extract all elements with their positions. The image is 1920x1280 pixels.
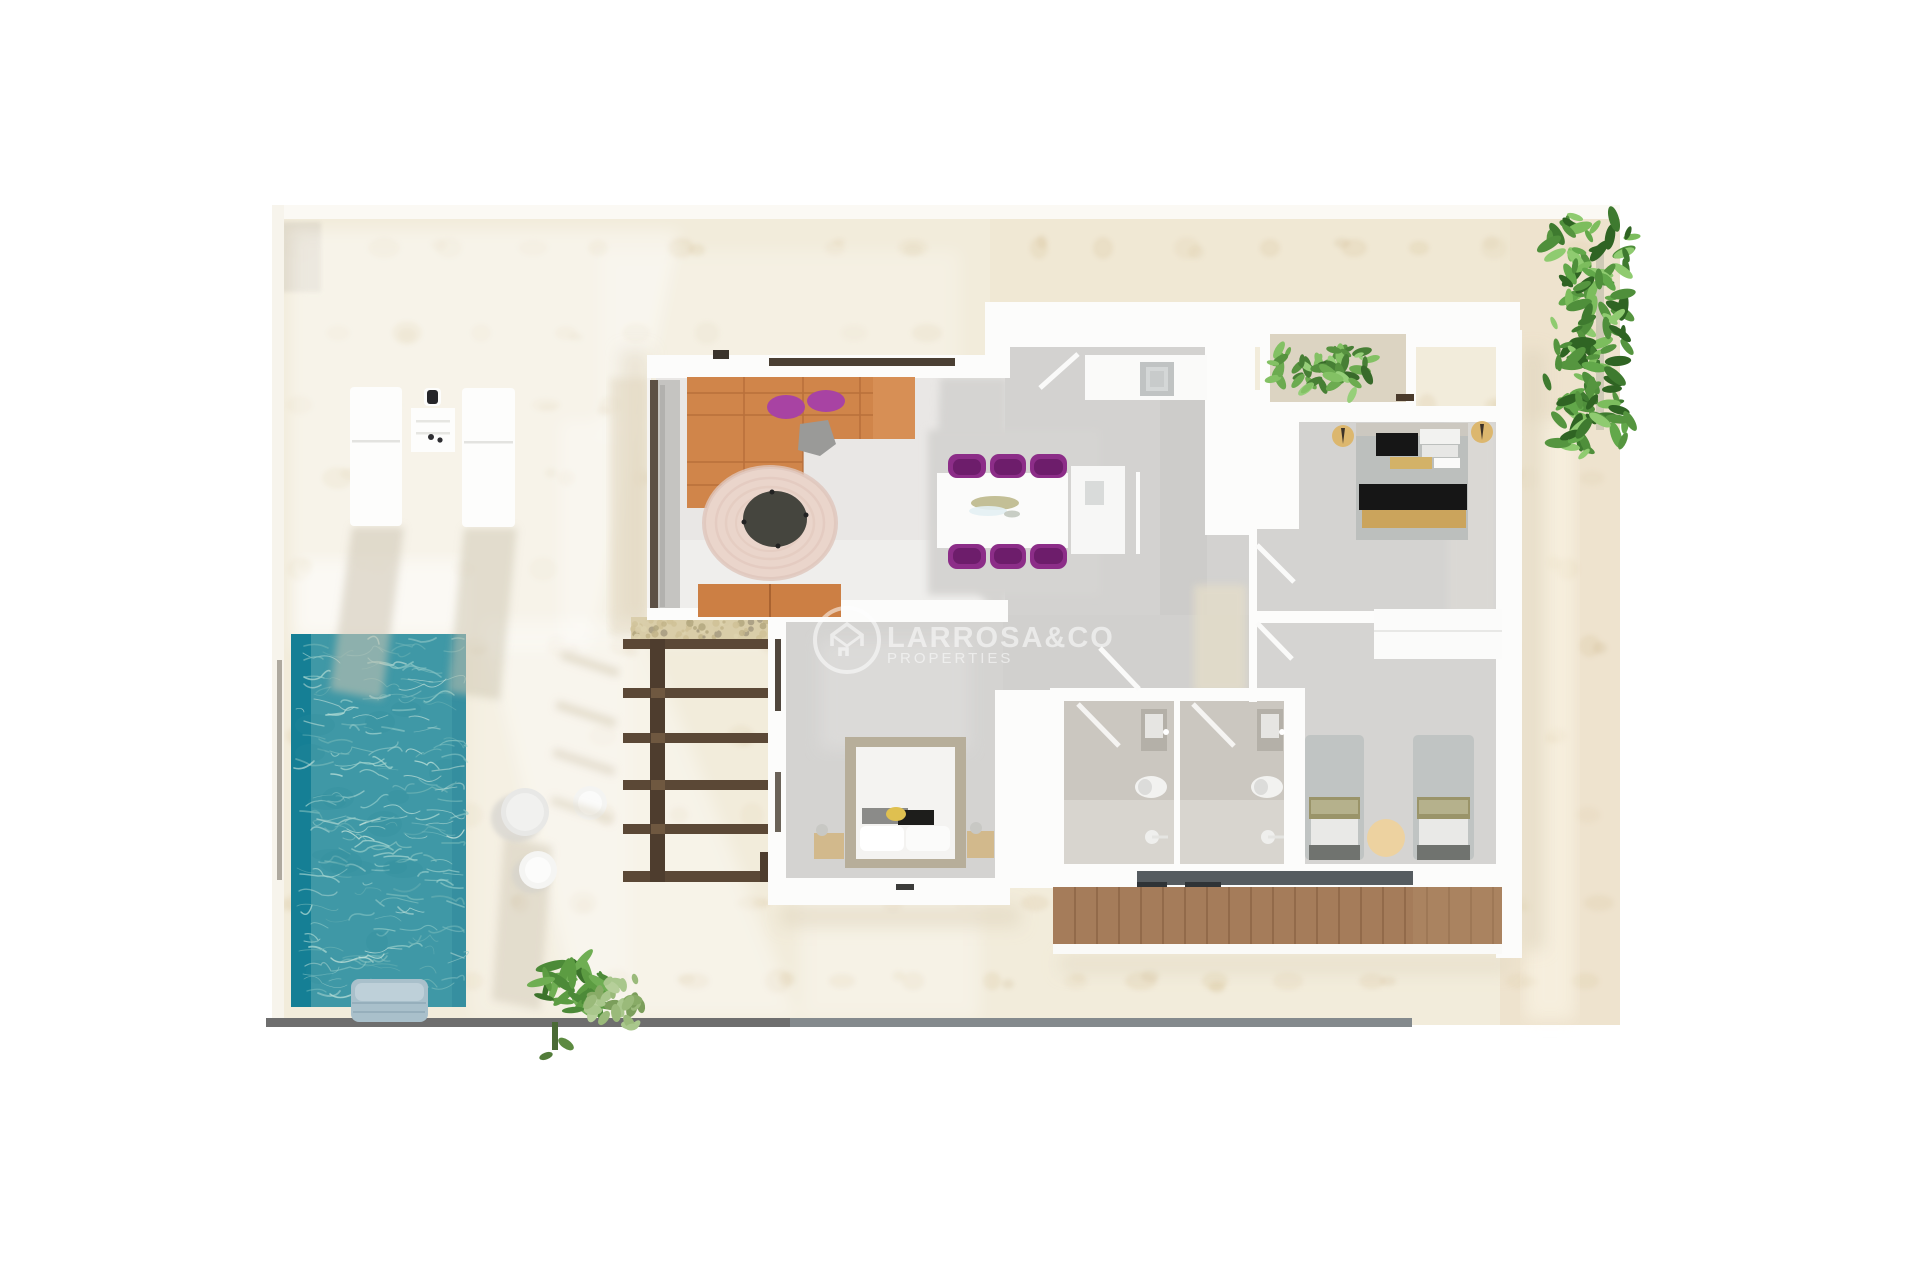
svg-text:PROPERTIES: PROPERTIES <box>887 650 1013 667</box>
